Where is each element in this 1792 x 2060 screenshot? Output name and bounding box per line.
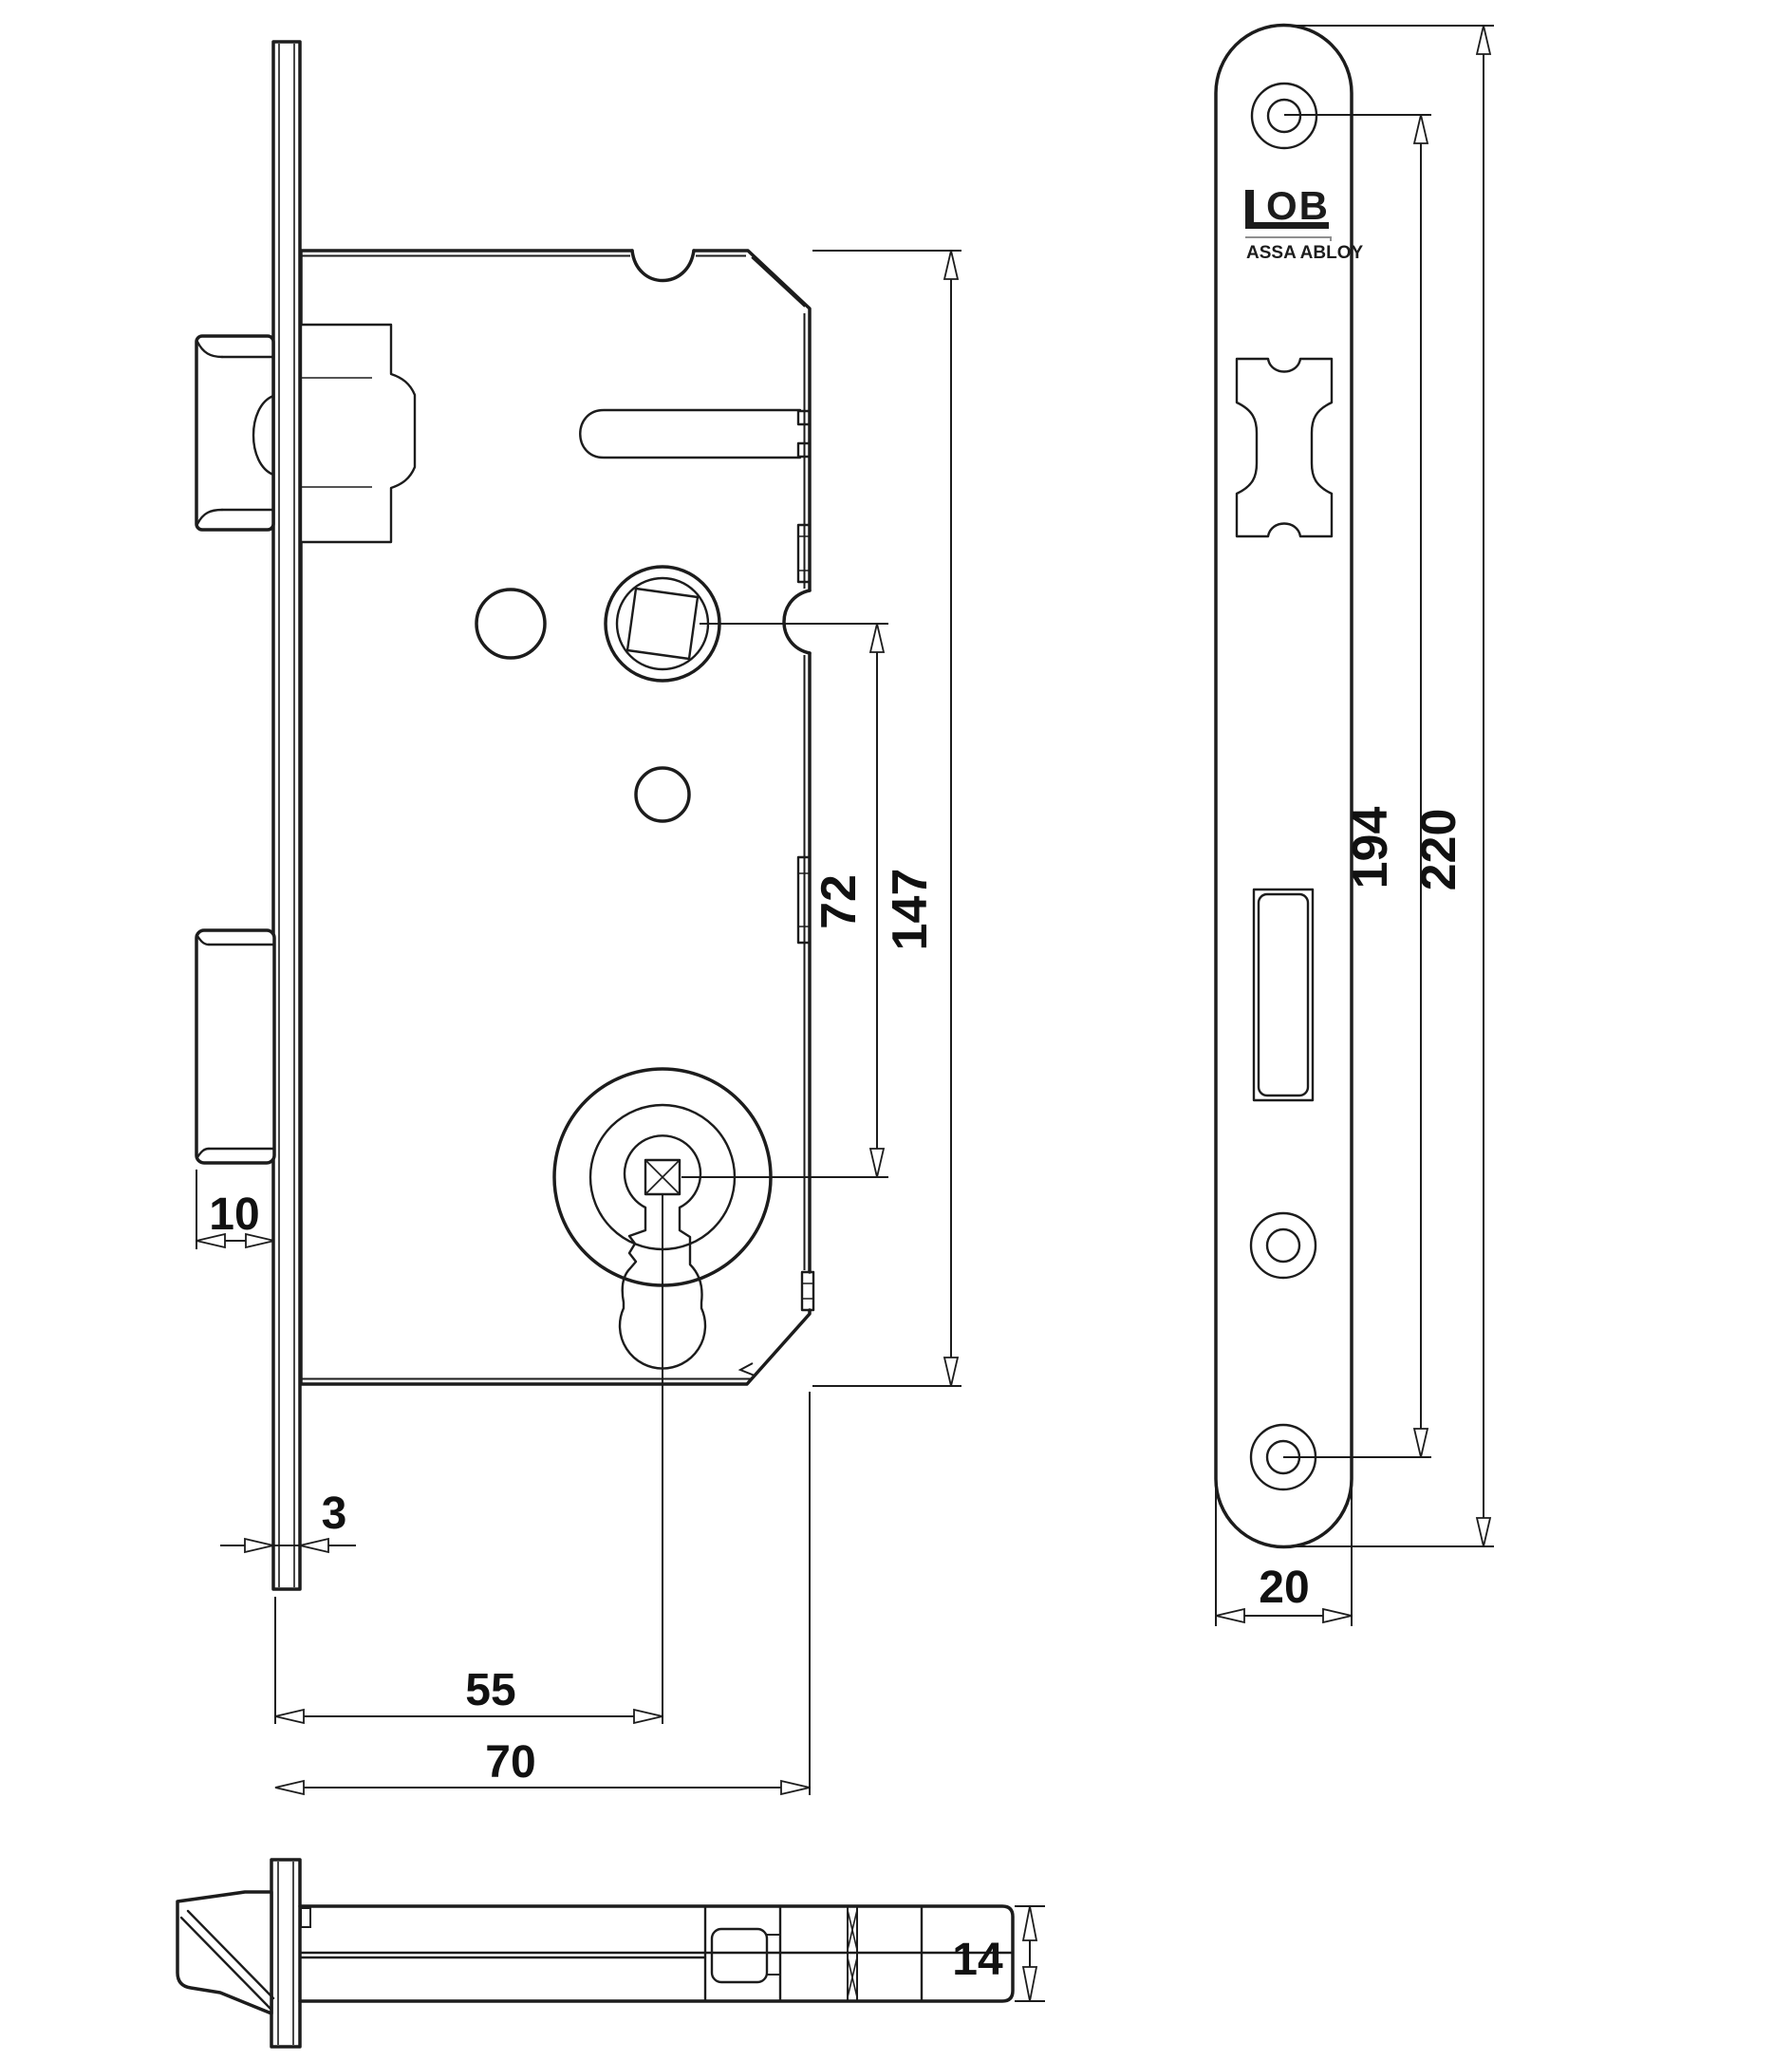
deadbolt-head	[196, 930, 274, 1163]
screw-hole-inner	[1267, 1229, 1299, 1262]
arrowhead	[870, 1149, 884, 1177]
side-view	[196, 42, 813, 1589]
dim-lines	[812, 251, 961, 1386]
arrowhead	[245, 1539, 273, 1552]
dim-screw-spacing: 194	[1283, 115, 1431, 1457]
spindle-square-hole	[627, 589, 698, 659]
latch-bolt-head	[196, 336, 273, 530]
dim-label: 14	[952, 1935, 1003, 1985]
arrowhead	[1323, 1609, 1352, 1622]
screw-hole-outer	[1251, 1213, 1316, 1278]
bottom-view	[177, 1860, 1013, 2047]
dim-label: 10	[209, 1189, 259, 1240]
dim-label: 70	[485, 1737, 535, 1788]
dim-faceplate-thickness: 3	[220, 1489, 356, 1552]
arrowhead	[1477, 26, 1490, 54]
faceplate-bottom-inner-lines	[278, 1862, 293, 2045]
dimensions: 10 3 55 70 72	[196, 26, 1494, 2001]
arrowhead	[1023, 1967, 1036, 2001]
latch-shaft-midlines	[300, 1953, 1013, 1957]
arrowhead	[944, 1358, 958, 1386]
dim-case-depth: 70	[275, 1392, 810, 1795]
dim-deadbolt-throw: 10	[196, 1170, 274, 1249]
lob-logo-letters: OB	[1266, 183, 1330, 228]
latch-bolt	[196, 325, 415, 542]
latch-bolt-tail	[301, 325, 415, 542]
arrowhead	[1414, 115, 1428, 143]
dim-label: 20	[1259, 1563, 1309, 1613]
deadbolt-cutout-inner	[1259, 894, 1308, 1096]
top-chamfer-second-line	[752, 257, 805, 307]
arrowhead	[275, 1710, 304, 1723]
lock-drawing: OB ASSA ABLOY 10	[0, 0, 1792, 2060]
dim-latch-height: 14	[952, 1906, 1045, 2001]
dim-label: 72	[812, 874, 867, 929]
dim-lines	[275, 1392, 810, 1795]
shaft-ladder-lines	[767, 1935, 780, 1975]
deadbolt-cutout-outer	[1254, 890, 1313, 1100]
logo-divider-line	[1245, 237, 1331, 241]
arrowhead	[944, 251, 958, 279]
logo-parent-company: ASSA ABLOY	[1246, 243, 1363, 263]
arrowhead	[1414, 1429, 1428, 1457]
screw-hole-middle	[1251, 1213, 1316, 1278]
technical-drawing-canvas: OB ASSA ABLOY 10	[0, 0, 1792, 2060]
faceplate-bottom-view	[271, 1860, 300, 2047]
arrowhead	[634, 1710, 663, 1723]
arrowhead	[781, 1781, 810, 1794]
dim-backset: 55	[275, 1194, 663, 1724]
shaft-inner-block	[712, 1929, 767, 1982]
dim-faceplate-width: 20	[1216, 1483, 1352, 1626]
lob-logo: OB ASSA ABLOY	[1245, 183, 1363, 263]
right-edge-notch	[784, 590, 810, 653]
fixing-hole	[476, 590, 545, 658]
arrowhead	[275, 1781, 304, 1794]
latch-cutout	[1237, 359, 1332, 536]
dim-label: 55	[465, 1665, 515, 1715]
dim-label: 147	[883, 869, 938, 951]
arrowhead	[300, 1539, 328, 1552]
shaft-left-step	[301, 1908, 310, 1927]
dim-label: 3	[322, 1489, 347, 1539]
dim-label: 194	[1343, 807, 1398, 890]
dim-lines	[275, 1194, 663, 1724]
arrowhead	[870, 624, 884, 652]
deadbolt	[196, 930, 274, 1163]
arrowhead	[1477, 1518, 1490, 1546]
faceplate-edge-inner-lines	[279, 44, 294, 1587]
auxiliary-hole	[636, 768, 689, 821]
arrowhead	[1216, 1609, 1244, 1622]
dim-label: 220	[1411, 809, 1466, 891]
dim-spindle-to-cylinder: 72	[681, 624, 888, 1177]
faceplate-view: OB ASSA ABLOY	[1216, 25, 1363, 1546]
edge-tab-lines	[802, 1283, 813, 1299]
dim-lines	[1283, 115, 1431, 1457]
arrowhead	[1023, 1906, 1036, 1940]
cylinder-center-mark	[645, 1160, 680, 1194]
faceplate-edge	[273, 42, 300, 1589]
dim-case-height: 147	[812, 251, 961, 1386]
edge-tab	[802, 1272, 813, 1310]
guide-slot	[580, 410, 800, 458]
top-edge-notch	[632, 251, 694, 281]
